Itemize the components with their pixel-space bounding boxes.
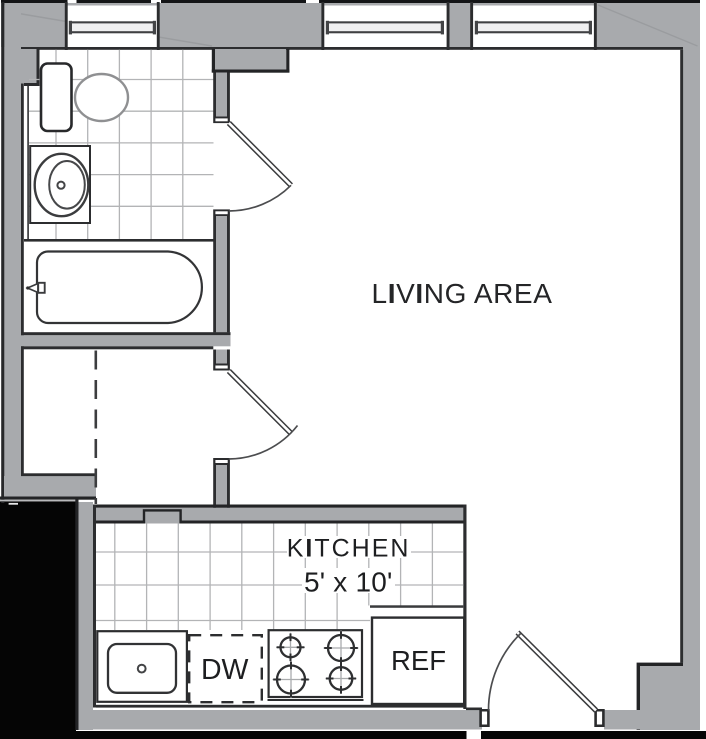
svg-text:LIVING AREA: LIVING AREA xyxy=(372,278,553,309)
svg-text:5' x 10': 5' x 10' xyxy=(304,567,393,598)
svg-text:DW: DW xyxy=(201,654,249,686)
svg-text:REF: REF xyxy=(391,645,446,676)
svg-text:KITCHEN: KITCHEN xyxy=(287,534,411,562)
